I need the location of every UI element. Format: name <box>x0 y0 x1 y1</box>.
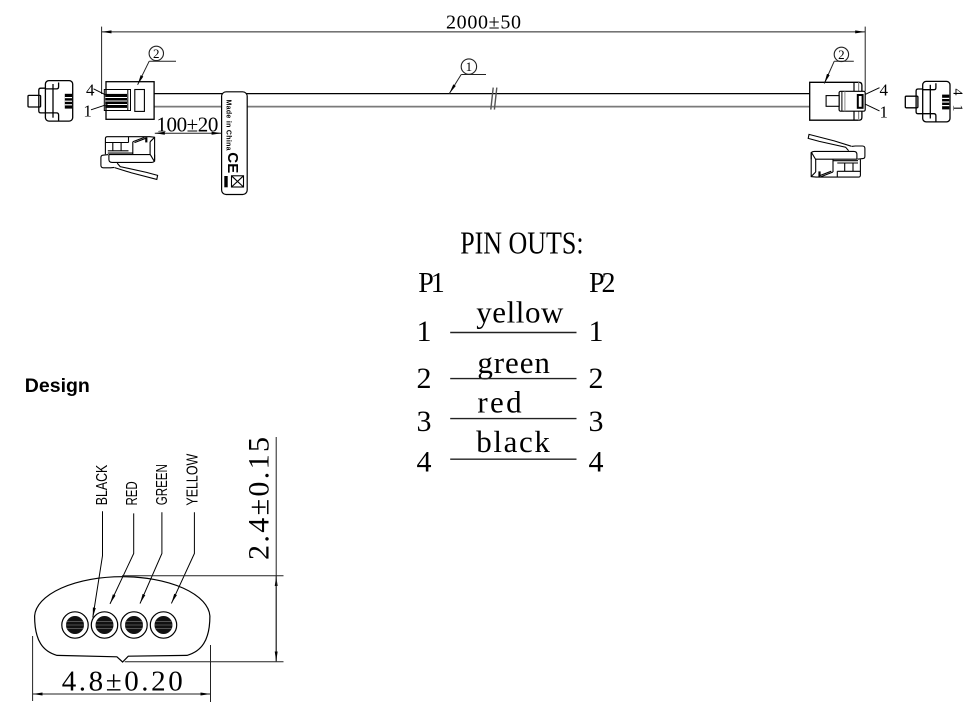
svg-text:yellow: yellow <box>476 295 564 330</box>
svg-text:CE: CE <box>224 152 241 173</box>
svg-text:3: 3 <box>417 405 432 438</box>
svg-text:1: 1 <box>83 101 92 120</box>
svg-text:4: 4 <box>589 446 604 479</box>
svg-text:1: 1 <box>950 105 965 112</box>
svg-text:1: 1 <box>466 59 473 74</box>
svg-text:P1: P1 <box>418 268 445 299</box>
svg-text:1: 1 <box>417 315 432 348</box>
svg-text:PIN OUTS:: PIN OUTS: <box>460 226 583 261</box>
svg-text:2: 2 <box>589 362 604 395</box>
svg-text:BLACK: BLACK <box>94 464 111 505</box>
svg-text:2: 2 <box>153 46 160 61</box>
svg-text:YELLOW: YELLOW <box>185 453 202 505</box>
svg-text:2000±50: 2000±50 <box>446 12 521 34</box>
svg-text:3: 3 <box>589 405 604 438</box>
svg-text:100±20: 100±20 <box>156 112 218 136</box>
svg-text:green: green <box>477 345 550 380</box>
svg-text:RED: RED <box>124 481 141 505</box>
svg-text:Made in China: Made in China <box>225 100 232 151</box>
svg-text:4: 4 <box>417 446 432 479</box>
svg-text:4: 4 <box>879 80 888 99</box>
svg-text:2: 2 <box>417 362 432 395</box>
svg-text:black: black <box>476 424 550 459</box>
svg-text:1: 1 <box>589 315 604 348</box>
svg-text:4: 4 <box>950 89 965 96</box>
svg-text:2: 2 <box>838 47 845 62</box>
svg-text:GREEN: GREEN <box>154 464 171 505</box>
svg-text:4: 4 <box>86 81 95 100</box>
svg-text:red: red <box>477 385 522 420</box>
svg-text:P2: P2 <box>589 268 616 299</box>
svg-text:Design: Design <box>25 375 90 397</box>
svg-text:1: 1 <box>879 102 888 121</box>
